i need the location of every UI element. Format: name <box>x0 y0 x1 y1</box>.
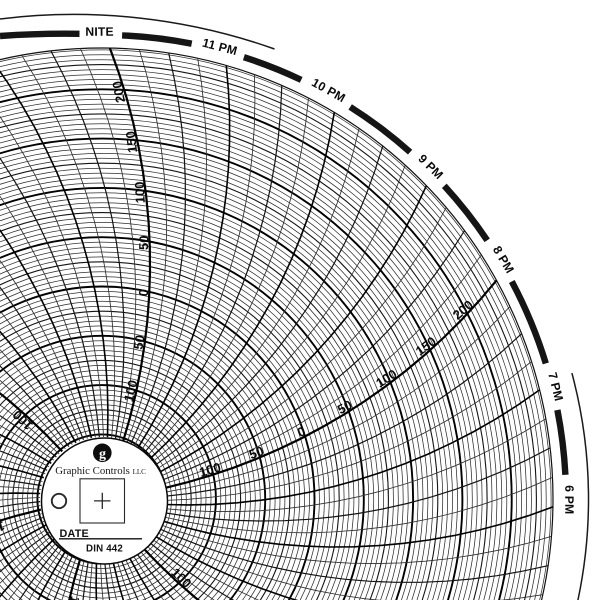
svg-text:6 PM: 6 PM <box>562 485 576 514</box>
svg-text:150: 150 <box>123 130 140 153</box>
svg-text:50: 50 <box>130 334 147 351</box>
svg-text:g: g <box>99 447 106 462</box>
svg-text:100: 100 <box>132 181 148 203</box>
svg-text:50: 50 <box>136 235 151 250</box>
svg-text:DIN 442: DIN 442 <box>86 544 123 555</box>
svg-text:Graphic Controls LLC: Graphic Controls LLC <box>55 465 146 477</box>
svg-text:NITE: NITE <box>85 25 114 39</box>
svg-text:DATE: DATE <box>60 528 89 540</box>
svg-text:0: 0 <box>136 288 152 297</box>
